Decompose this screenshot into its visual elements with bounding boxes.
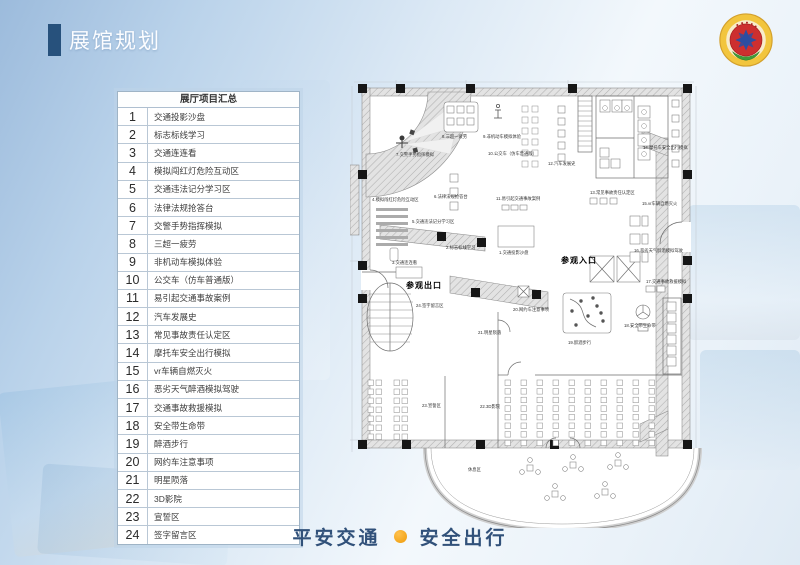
table-row-label: 标志标线学习	[148, 129, 299, 141]
table-row: 4 模拟闯红灯危险互动区	[118, 163, 299, 181]
table-row: 2 标志标线学习	[118, 126, 299, 144]
table-row-label: 模拟闯红灯危险互动区	[148, 165, 299, 177]
table-row-number: 17	[118, 399, 148, 416]
plan-area-label: 3.交通连连看	[392, 259, 418, 266]
table-row-number: 18	[118, 417, 148, 434]
traffic-safety-emblem-logo	[717, 11, 775, 65]
table-row-number: 8	[118, 235, 148, 252]
plan-area-label: 12.汽车发展史	[548, 160, 576, 167]
table-row-number: 12	[118, 308, 148, 325]
plan-area-label: 7.交警手势指挥模拟	[396, 151, 435, 158]
shaft-box	[518, 286, 529, 297]
table-row: 14 摩托车安全出行模拟	[118, 344, 299, 362]
case-fixtures	[502, 205, 527, 210]
plan-area-label: 18.安全带生命带	[624, 322, 656, 329]
table-row: 21 明星陨落	[118, 472, 299, 490]
sand-table	[498, 226, 534, 247]
table-row-number: 22	[118, 490, 148, 507]
table-row: 13 常见事故责任认定区	[118, 326, 299, 344]
plan-area-label: 5.交通违法记分学习区	[412, 218, 455, 225]
plan-area-label: 24.签字留言区	[416, 302, 444, 309]
footer-slogan: 平安交通 安全出行	[0, 523, 800, 550]
plan-area-label: 17.交通事故救援模拟	[646, 278, 687, 285]
footer-left-text: 平安交通	[292, 523, 380, 550]
table-row-label: 醉酒步行	[148, 438, 299, 450]
plan-area-label: 9.非机动车模拟体验	[483, 133, 522, 140]
plan-area-label: 4.模拟闯红灯危险互动区	[372, 196, 419, 203]
plan-area-label: 13.常见事故责任认定区	[590, 189, 635, 196]
table-row-number: 10	[118, 272, 148, 289]
plan-area-label: 2.标志标线学习	[446, 244, 475, 251]
table-row-number: 20	[118, 454, 148, 471]
plan-area-label: 19.醉酒步行	[568, 339, 592, 346]
table-row-label: 易引起交通事故案例	[148, 292, 299, 304]
table-row-label: 汽车发展史	[148, 311, 299, 323]
table-row-label: 交通连连看	[148, 147, 299, 159]
plan-area-label: 休息区	[468, 466, 482, 473]
table-row-label: 3D影院	[148, 493, 299, 505]
plan-area-label: 1.交通投影沙盘	[499, 249, 529, 256]
plan-exit-label: 参观出口	[405, 280, 442, 290]
table-row: 5 交通违法记分学习区	[118, 181, 299, 199]
table-row-label: 法律法规抢答台	[148, 202, 299, 214]
table-row-number: 16	[118, 381, 148, 398]
table-row: 9 非机动车模拟体验	[118, 254, 299, 272]
table-row-number: 3	[118, 144, 148, 161]
table-row-label: 交通投影沙盘	[148, 111, 299, 123]
project-summary-table: 展厅项目汇总 1 交通投影沙盘 2 标志标线学习 3 交通连连看 4 模拟闯红灯…	[117, 91, 300, 545]
plan-area-label: 8.三超一疲劳	[442, 133, 468, 140]
slide: 展馆规划 展厅项目汇总 1 交通投影沙盘 2 标志标线学习 3	[0, 0, 800, 565]
table-row-label: 摩托车安全出行模拟	[148, 347, 299, 359]
floor-plan: 参观入口参观出口1.交通投影沙盘2.标志标线学习3.交通连连看4.模拟闯红灯危险…	[350, 80, 770, 528]
table-row-label: 交警手势指挥模拟	[148, 220, 299, 232]
plan-area-label: 11.易引起交通事故案例	[496, 195, 540, 202]
table-row-label: 交通事故救援模拟	[148, 402, 299, 414]
plan-area-label: 16.恶劣天气醉酒模拟驾驶	[634, 247, 684, 254]
plan-area-label: 10.公交车（仿车普通版）	[488, 150, 537, 157]
plan-area-label: 20.网约车注意事项	[513, 306, 550, 313]
plan-area-label: 14.摩托车安全出行模拟	[643, 144, 688, 151]
table-row-label: 交通违法记分学习区	[148, 183, 299, 195]
table-row: 10 公交车（仿车普通版）	[118, 272, 299, 290]
plan-entrance-label: 参观入口	[560, 255, 597, 265]
table-row-number: 13	[118, 326, 148, 343]
table-row-label: 非机动车模拟体验	[148, 256, 299, 268]
table-row: 1 交通投影沙盘	[118, 108, 299, 126]
page-title: 展馆规划	[69, 25, 161, 55]
table-row: 12 汽车发展史	[118, 308, 299, 326]
table-row-label: 网约车注意事项	[148, 456, 299, 468]
fatigue-area	[444, 102, 478, 132]
table-row-number: 5	[118, 181, 148, 198]
table-row-label: 公交车（仿车普通版）	[148, 274, 299, 286]
footer-right-text: 安全出行	[420, 523, 508, 550]
title-bar: 展馆规划	[48, 24, 161, 56]
table-row-number: 11	[118, 290, 148, 307]
footer-dot-icon	[394, 530, 407, 543]
table-row: 11 易引起交通事故案例	[118, 290, 299, 308]
table-row: 22 3D影院	[118, 490, 299, 508]
table-row-number: 6	[118, 199, 148, 216]
table-row: 7 交警手势指挥模拟	[118, 217, 299, 235]
table-row-label: 常见事故责任认定区	[148, 329, 299, 341]
table-row: 8 三超一疲劳	[118, 235, 299, 253]
plan-area-label: 23.宣誓区	[422, 402, 442, 409]
table-row-number: 15	[118, 363, 148, 380]
table-header: 展厅项目汇总	[118, 92, 299, 108]
table-row-number: 1	[118, 108, 148, 125]
table-row: 20 网约车注意事项	[118, 454, 299, 472]
table-row-label: 安全带生命带	[148, 420, 299, 432]
table-row-number: 19	[118, 435, 148, 452]
table-row-number: 4	[118, 163, 148, 180]
table-row-number: 14	[118, 344, 148, 361]
table-row-number: 21	[118, 472, 148, 489]
table-row: 3 交通连连看	[118, 144, 299, 162]
table-row: 6 法律法规抢答台	[118, 199, 299, 217]
match-game-table	[396, 267, 422, 278]
table-row-number: 2	[118, 126, 148, 143]
table-row: 19 醉酒步行	[118, 435, 299, 453]
table-row: 18 安全带生命带	[118, 417, 299, 435]
title-marker	[48, 24, 61, 56]
table-row-number: 7	[118, 217, 148, 234]
table-row-label: vr车辆自燃灭火	[148, 365, 299, 377]
table-row-label: 宣誓区	[148, 511, 299, 523]
plan-area-label: 6.法律法规抢答台	[434, 193, 468, 200]
table-row: 15 vr车辆自燃灭火	[118, 363, 299, 381]
table-row: 16 恶劣天气醉酒模拟驾驶	[118, 381, 299, 399]
table-row-label: 明星陨落	[148, 474, 299, 486]
table-row-label: 恶劣天气醉酒模拟驾驶	[148, 383, 299, 395]
table-row-label: 三超一疲劳	[148, 238, 299, 250]
driving-sims	[630, 216, 648, 262]
table-row: 17 交通事故救援模拟	[118, 399, 299, 417]
plan-area-label: 22.3D影院	[480, 403, 501, 410]
table-row-number: 9	[118, 254, 148, 271]
plan-area-label: 15.vr车辆自燃灭火	[642, 200, 678, 207]
plan-area-label: 21.明星陨落	[478, 329, 502, 336]
drunk-walk-box	[563, 293, 611, 333]
quiz-desks	[450, 174, 458, 210]
liability-fixtures	[590, 198, 617, 204]
